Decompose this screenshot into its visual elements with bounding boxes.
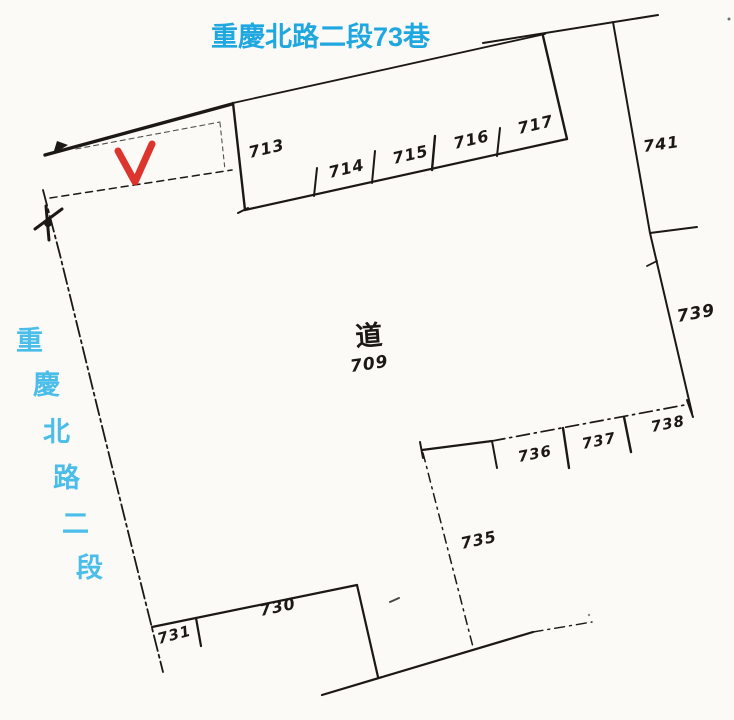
parcel-label-739: 739 <box>675 301 716 327</box>
speck <box>390 598 399 602</box>
parcel-label-715: 715 <box>391 141 431 168</box>
pen-blob <box>44 219 52 227</box>
map-top-border <box>483 15 658 43</box>
center-parcel-number: 709 <box>349 352 390 377</box>
parcel-label-717: 717 <box>516 111 556 138</box>
bottom-boundary-dash <box>533 622 592 632</box>
tick-714-715 <box>372 151 375 183</box>
dashed-strip-right-edge <box>220 123 225 170</box>
red-check-mark <box>118 144 152 182</box>
tick-731-730 <box>196 618 201 646</box>
tick-736-737 <box>563 428 569 468</box>
bottom-boundary-solid <box>322 632 533 695</box>
stray-dot <box>728 18 731 21</box>
ink-drawing: 713 714 715 716 717 741 739 738 737 736 … <box>0 0 734 720</box>
tick-715-716 <box>432 136 435 170</box>
parcel-label-741: 741 <box>642 132 681 156</box>
tick-713-714 <box>314 168 317 196</box>
block-730-top-edge <box>152 585 357 627</box>
lower-strip-solid-segment <box>422 441 492 450</box>
tick-716-717 <box>497 128 500 156</box>
parcel-label-716: 716 <box>452 126 492 153</box>
tick-737-738 <box>624 417 631 452</box>
left-road-line <box>43 190 163 672</box>
parcel-label-737: 737 <box>580 429 617 453</box>
parcel-label-730: 730 <box>258 594 298 620</box>
top-road-line <box>45 104 232 155</box>
tick-741-739 <box>647 261 657 266</box>
right-boundary-line <box>613 22 692 413</box>
tick-lower-1 <box>492 441 497 468</box>
parcel-label-713: 713 <box>247 135 287 162</box>
block-730-right-edge <box>357 585 378 677</box>
parcel-713-left-edge <box>233 103 245 210</box>
parcel-label-736: 736 <box>516 442 553 466</box>
parcel-label-738: 738 <box>649 412 686 436</box>
parcel-label-714: 714 <box>327 155 367 182</box>
center-parcel-char: 道 <box>354 319 383 353</box>
cadastral-sketch-map: 重慶北路二段73巷 重 慶 北 路 二 段 <box>0 0 734 720</box>
parcel-label-735: 735 <box>459 527 499 553</box>
speck <box>588 614 590 616</box>
top-strip-upper-boundary <box>233 34 545 103</box>
parcel-741-bottom-edge <box>650 227 697 233</box>
